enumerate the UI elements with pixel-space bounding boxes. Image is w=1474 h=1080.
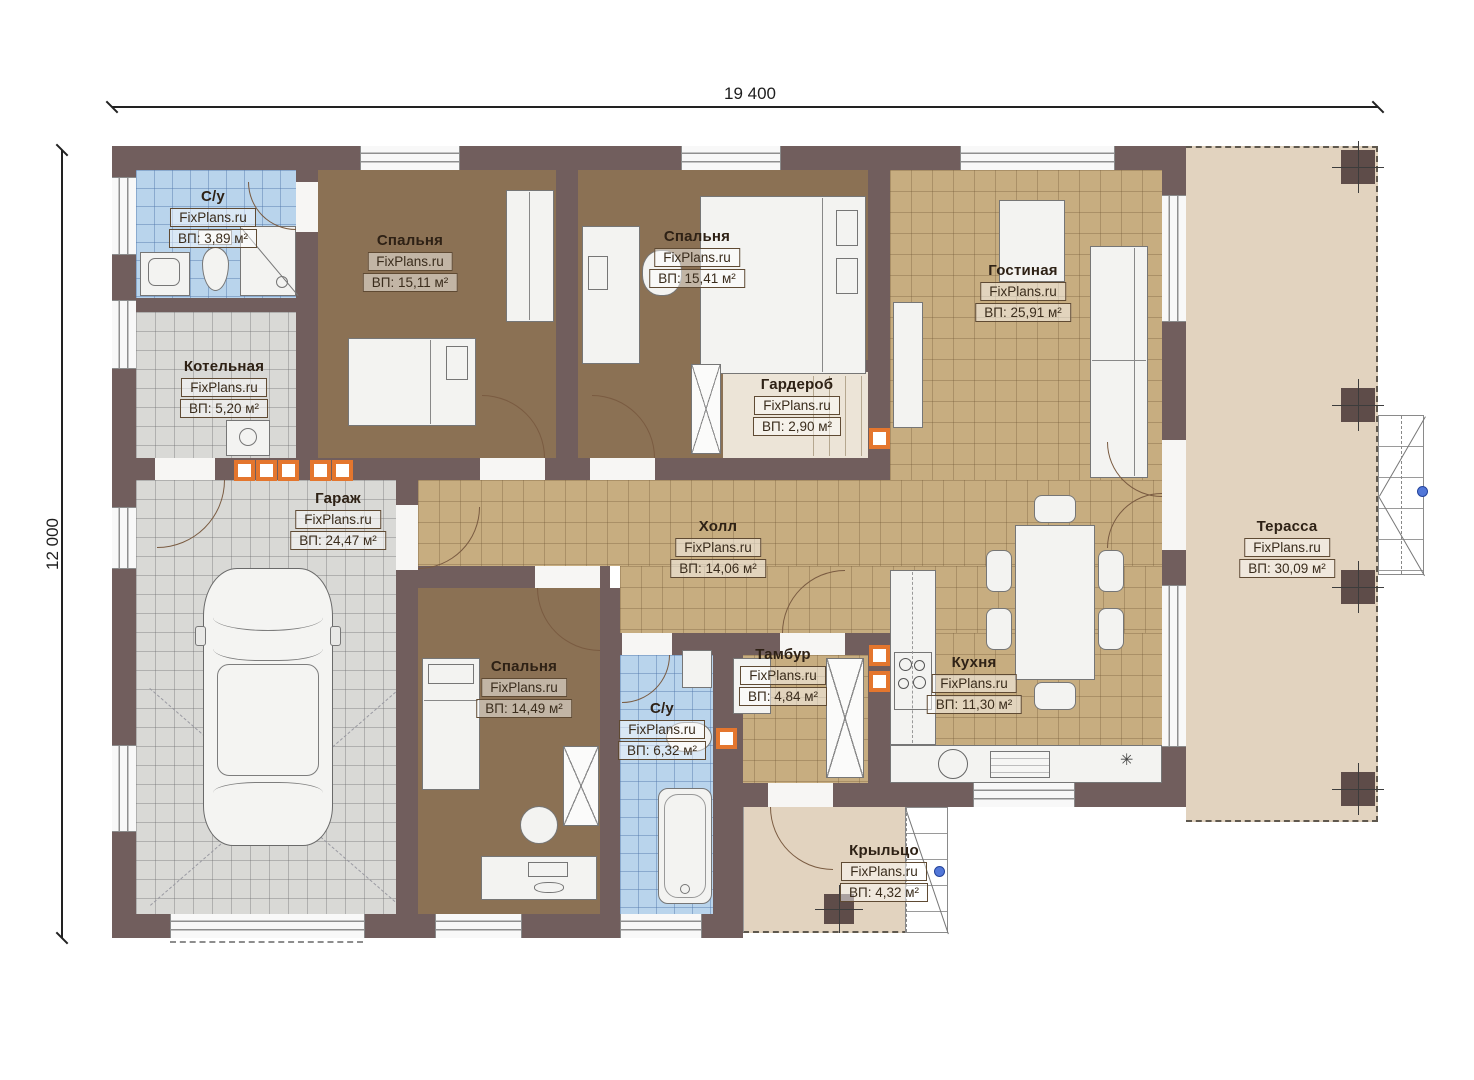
sink (682, 650, 712, 688)
cooktop-symbol: ✳ (1120, 750, 1133, 770)
terrace-door-opening (1162, 440, 1186, 550)
counter-line (912, 572, 913, 743)
room-label-bedroom-3: Спальня FixPlans.ru ВП: 14,49 м² (476, 658, 572, 718)
room-label-kitchen: Кухня FixPlans.ru ВП: 11,30 м² (927, 654, 1022, 714)
floor-plan: 19 400 12 000 (0, 0, 1474, 1080)
column (1341, 570, 1375, 604)
stair-center-line (1401, 416, 1402, 574)
cabinet-line (529, 192, 530, 320)
room-label-living-room: Гостиная FixPlans.ru ВП: 25,91 м² (975, 262, 1071, 322)
vent-icon (256, 460, 277, 481)
closet (563, 746, 599, 826)
car-mirror (195, 626, 206, 646)
garage-gate-swing (170, 941, 363, 943)
room-name: Котельная (180, 358, 268, 375)
pillow (836, 258, 858, 294)
garage-gate (170, 914, 365, 938)
room-name: Гостиная (975, 262, 1071, 279)
room-area: ВП: 15,11 м² (363, 273, 458, 292)
room-name: Спальня (363, 232, 458, 249)
room-label-hall: Холл FixPlans.ru ВП: 14,06 м² (670, 518, 766, 578)
door-opening (296, 182, 318, 232)
room-label-terrace: Терасса FixPlans.ru ВП: 30,09 м² (1239, 518, 1335, 578)
window (112, 300, 136, 369)
desk-item (588, 256, 608, 290)
vent-icon (869, 645, 890, 666)
blanket-line (822, 198, 823, 372)
wall-interior (556, 170, 578, 458)
room-watermark: FixPlans.ru (841, 862, 927, 881)
room-name: Крыльцо (840, 842, 928, 859)
pillow (836, 210, 858, 246)
room-label-vestibule: Тамбур FixPlans.ru ВП: 4,84 м² (739, 646, 827, 706)
door-opening (590, 458, 655, 480)
vent-icon (234, 460, 255, 481)
room-area: ВП: 4,32 м² (840, 883, 928, 902)
window (1162, 195, 1186, 322)
room-name: Спальня (476, 658, 572, 675)
pillow (428, 664, 474, 684)
marker-dot (934, 866, 945, 877)
sofa-seat-line (1092, 360, 1146, 361)
door-opening (622, 633, 672, 655)
terrace-floor (1186, 146, 1378, 822)
chair (986, 608, 1012, 650)
door-opening (396, 505, 418, 570)
dimension-line-top (112, 106, 1378, 108)
door-opening (480, 458, 545, 480)
window (112, 177, 136, 255)
room-name: Холл (670, 518, 766, 535)
room-watermark: FixPlans.ru (481, 678, 567, 697)
wardrobe-cabinet (506, 190, 554, 322)
bathtub-inner (664, 794, 706, 898)
room-watermark: FixPlans.ru (170, 208, 256, 227)
burner (914, 660, 925, 671)
room-label-porch: Крыльцо FixPlans.ru ВП: 4,32 м² (840, 842, 928, 902)
boiler-dial (239, 428, 257, 446)
sink-basin (148, 258, 180, 286)
kitchen-sink (938, 749, 968, 779)
chair (1098, 550, 1124, 592)
room-area: ВП: 24,47 м² (290, 531, 386, 550)
room-name: Гардероб (753, 376, 841, 393)
window (620, 914, 702, 938)
window (360, 146, 460, 170)
dimension-width-label: 19 400 (695, 84, 805, 104)
pillow (446, 346, 468, 380)
room-name: Кухня (927, 654, 1022, 671)
column (1341, 772, 1375, 806)
window (681, 146, 781, 170)
door-opening (155, 458, 215, 480)
room-name: С/у (618, 700, 706, 717)
room-area: ВП: 3,89 м² (169, 229, 257, 248)
burner (899, 658, 912, 671)
room-label-garage: Гараж FixPlans.ru ВП: 24,47 м² (290, 490, 386, 550)
vent-icon (716, 728, 737, 749)
door-opening (535, 566, 600, 588)
chair (1034, 495, 1076, 523)
car-hood-line (213, 604, 323, 631)
room-watermark: FixPlans.ru (181, 378, 267, 397)
burner (898, 678, 909, 689)
room-area: ВП: 5,20 м² (180, 399, 268, 418)
terrace-stairs (1378, 415, 1424, 575)
room-watermark: FixPlans.ru (754, 396, 840, 415)
room-name: Тамбур (739, 646, 827, 663)
chair (986, 550, 1012, 592)
vent-icon (869, 428, 890, 449)
car-roof (217, 664, 319, 776)
blanket-line (430, 340, 431, 424)
room-label-wardrobe: Гардероб FixPlans.ru ВП: 2,90 м² (753, 376, 841, 436)
car-windshield (213, 630, 323, 661)
plant-pot (520, 806, 558, 844)
wall-interior (134, 298, 296, 312)
window (112, 745, 136, 832)
room-watermark: FixPlans.ru (675, 538, 761, 557)
room-area: ВП: 30,09 м² (1239, 559, 1335, 578)
window (112, 507, 136, 569)
room-watermark: FixPlans.ru (1244, 538, 1330, 557)
room-area: ВП: 6,32 м² (618, 741, 706, 760)
dishwasher (990, 751, 1050, 778)
vent-icon (869, 671, 890, 692)
column (1341, 150, 1375, 184)
chair (1098, 608, 1124, 650)
desk (582, 226, 640, 364)
window (1162, 585, 1186, 747)
room-area: ВП: 11,30 м² (927, 695, 1022, 714)
dimension-height-label: 12 000 (43, 499, 63, 589)
vent-icon (332, 460, 353, 481)
room-name: Спальня (649, 228, 745, 245)
closet (826, 658, 864, 778)
room-area: ВП: 25,91 м² (975, 303, 1071, 322)
room-area: ВП: 14,06 м² (670, 559, 766, 578)
burner (913, 676, 926, 689)
room-name: Гараж (290, 490, 386, 507)
room-area: ВП: 2,90 м² (753, 417, 841, 436)
room-label-bedroom-1: Спальня FixPlans.ru ВП: 15,11 м² (363, 232, 458, 292)
vent-icon (278, 460, 299, 481)
room-watermark: FixPlans.ru (367, 252, 453, 271)
vent-icon (310, 460, 331, 481)
room-label-boiler: Котельная FixPlans.ru ВП: 5,20 м² (180, 358, 268, 418)
cabinet (893, 302, 923, 428)
window (973, 783, 1075, 807)
door-opening (768, 783, 833, 807)
room-watermark: FixPlans.ru (295, 510, 381, 529)
marker-dot (1417, 486, 1428, 497)
room-watermark: FixPlans.ru (980, 282, 1066, 301)
car (203, 568, 333, 846)
room-label-bathroom-1: С/у FixPlans.ru ВП: 3,89 м² (169, 188, 257, 248)
room-area: ВП: 15,41 м² (649, 269, 745, 288)
window (435, 914, 522, 938)
car-mirror (330, 626, 341, 646)
room-label-bedroom-2: Спальня FixPlans.ru ВП: 15,41 м² (649, 228, 745, 288)
room-watermark: FixPlans.ru (740, 666, 826, 685)
closet (691, 364, 721, 454)
dining-table (1015, 525, 1095, 680)
room-watermark: FixPlans.ru (931, 674, 1017, 693)
desk-item (534, 882, 564, 893)
room-watermark: FixPlans.ru (654, 248, 740, 267)
chair (1034, 682, 1076, 710)
room-area: ВП: 14,49 м² (476, 699, 572, 718)
sofa-back-line (1134, 248, 1135, 476)
room-name: Терасса (1239, 518, 1335, 535)
column (1341, 388, 1375, 422)
room-label-bathroom-2: С/у FixPlans.ru ВП: 6,32 м² (618, 700, 706, 760)
room-watermark: FixPlans.ru (619, 720, 705, 739)
blanket-line (424, 700, 478, 701)
car-rear-window (213, 782, 323, 809)
room-name: С/у (169, 188, 257, 205)
window (960, 146, 1115, 170)
room-area: ВП: 4,84 м² (739, 687, 827, 706)
desk-item (528, 862, 568, 877)
